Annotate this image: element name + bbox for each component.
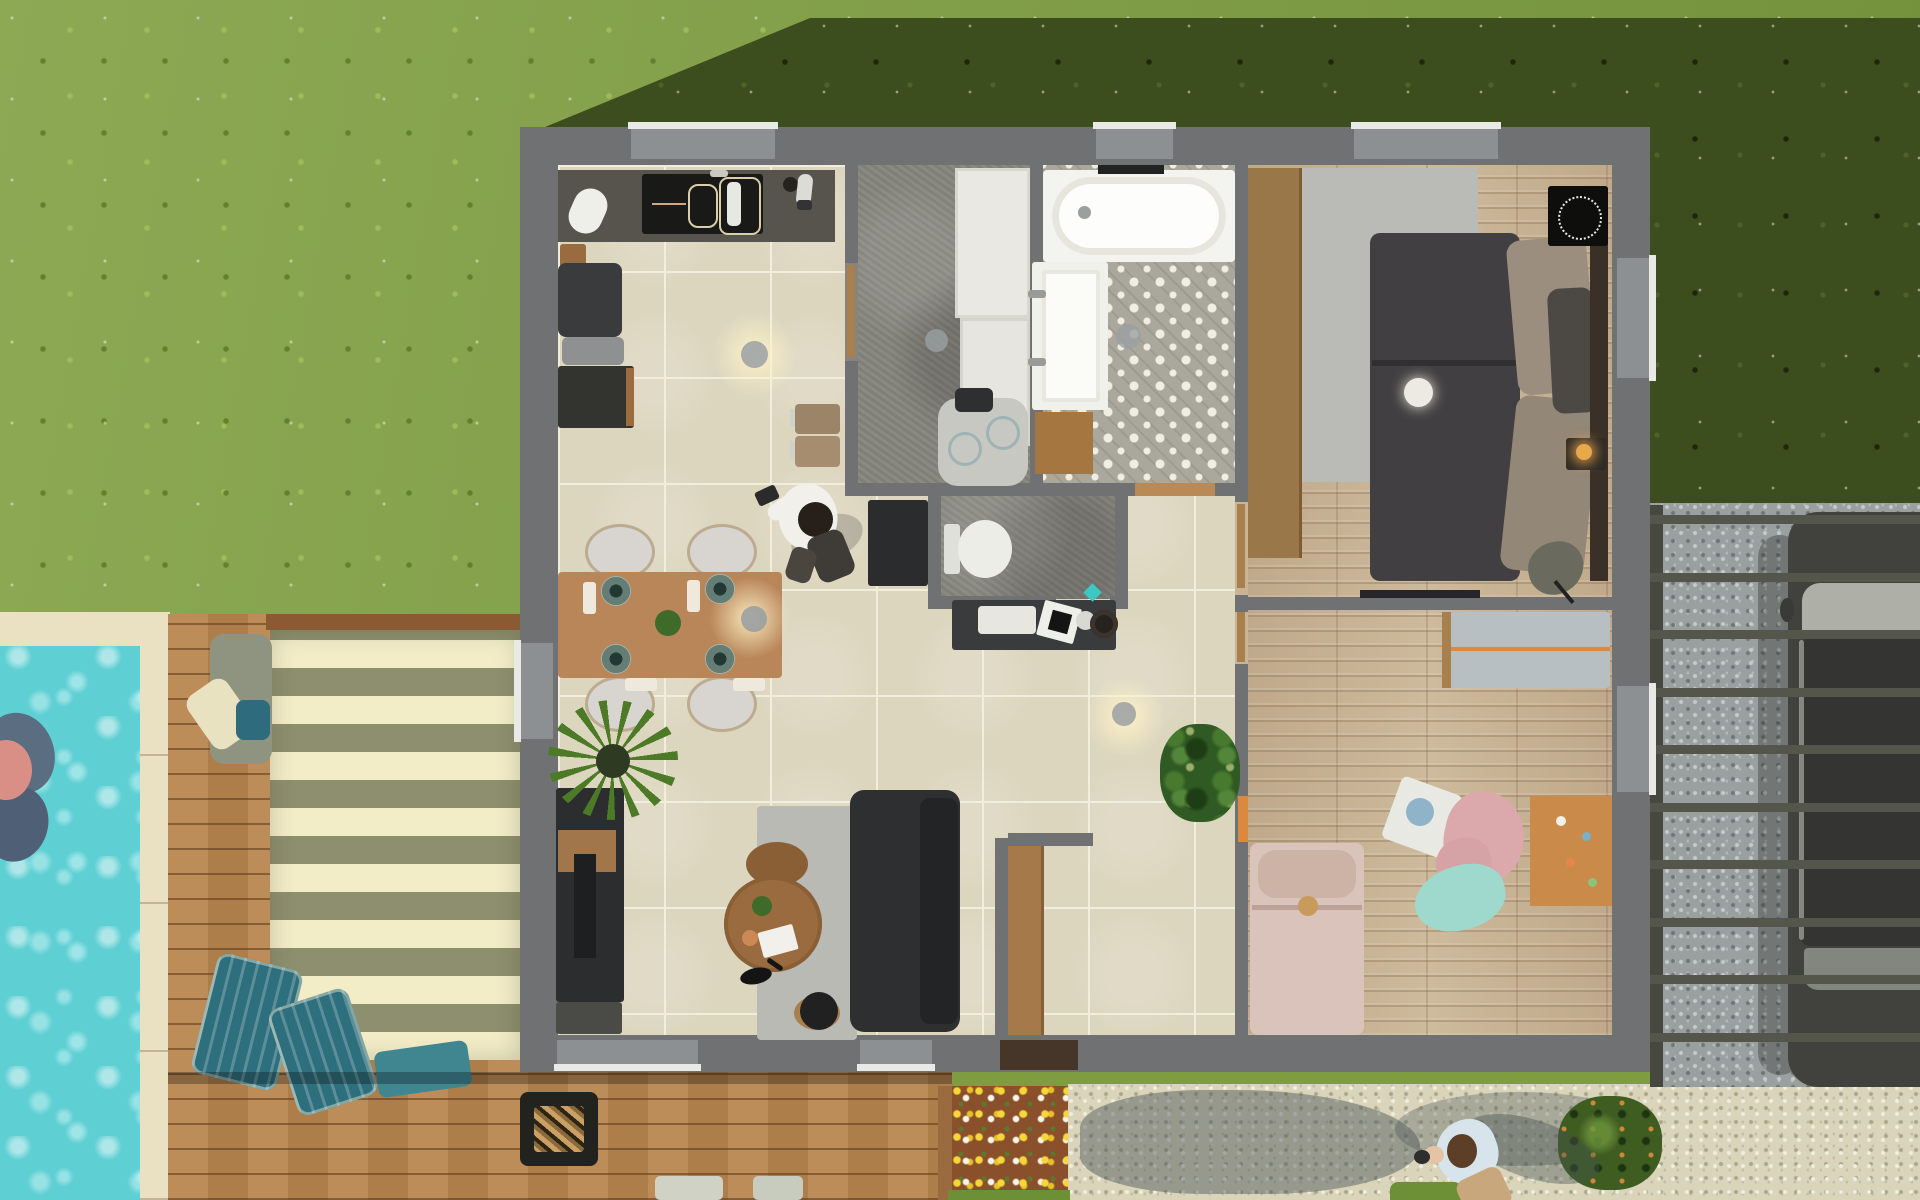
dining-plate [601,576,631,606]
ceiling-lamp-bedroom1 [1404,378,1433,407]
flowerbed [952,1086,1068,1200]
entry-doormat [556,1002,622,1034]
bedroom2-wall-shelf[interactable] [1238,796,1248,842]
pergola-awning[interactable] [270,630,520,1060]
sideboard-knob [1090,610,1118,638]
ceiling-lamp-bath [1116,324,1141,349]
side-chair-2[interactable] [795,436,840,467]
headboard [1590,236,1608,581]
pouf[interactable] [800,992,838,1030]
laundry-chair[interactable] [955,388,993,412]
window-north-3-sill [1351,122,1501,129]
kitchen-sink-basin [727,182,741,226]
wardrobe[interactable] [1248,168,1302,558]
dining-napkin [733,678,765,691]
fence-rail [1650,860,1920,869]
wall-wc-west [928,496,941,606]
car-mirror [1780,598,1794,622]
window-north-2 [1096,129,1173,159]
laundry-cabinet-1[interactable] [955,168,1030,318]
kitchen-espresso-machine[interactable] [783,177,798,192]
dining-napkin [625,678,657,691]
vanity-faucet-2 [1028,358,1046,366]
fire-pit-logs [534,1106,584,1152]
wall-entry-stub [1008,833,1093,846]
kitchen-kettle-cap [797,200,812,210]
fence-rail [1650,975,1920,984]
coffee-table-large[interactable] [724,876,822,972]
ceiling-lamp-laundry [925,329,948,352]
laundry-ring-1 [948,432,982,466]
sideboard-towels [978,606,1036,634]
changing-mat-strap [1448,647,1610,651]
media-unit-dark [574,854,596,958]
kitchen-sink-1 [688,184,718,228]
bathtub-drain [1078,206,1091,219]
fence-rail [1650,688,1920,697]
fence-post [1650,505,1663,1087]
bathroom-door-threshold[interactable] [1135,483,1215,496]
kids-desk-item [1588,878,1597,887]
bed-duvet[interactable] [1370,233,1520,581]
patio-door-south-sill [554,1064,701,1071]
ceiling-lamp-kitchen [741,341,768,368]
window-east-1 [1617,258,1649,378]
window-west [521,643,553,739]
window-east-2 [1617,686,1649,792]
dining-napkin [687,580,700,612]
side-chair-frame-2 [790,441,795,459]
bath-wall-shelf [1098,165,1164,174]
fence-rail [1650,1033,1920,1042]
kids-desk-item [1582,832,1591,841]
lounge-armchair[interactable] [558,263,622,337]
coffee-table-plant [752,896,772,916]
vanity-basin [1042,270,1100,402]
monstera-plant[interactable] [1160,724,1240,822]
laundry-ring-2 [986,416,1020,450]
lounger-sage-towel [236,700,270,740]
side-chair-frame-1 [790,409,795,427]
wall-bedrooms-west [1235,165,1248,1035]
bedroom1-desk-ledge[interactable] [1360,590,1480,598]
side-chair-1[interactable] [795,404,840,434]
wall-wc-east [1115,496,1128,606]
nightstand-lamp[interactable] [1576,444,1592,460]
window-north-1-sill [628,122,778,129]
bed-duvet-fold [1372,360,1518,366]
dining-napkin [583,582,596,614]
entry-door-south[interactable] [1000,1040,1078,1070]
dining-centerpiece-plant [655,610,681,636]
window-east-1-sill [1649,255,1656,381]
pergola-beam [266,614,520,630]
kids-desk-item [1556,816,1566,826]
hall-cabinet[interactable] [868,500,928,586]
fence-rail [1650,630,1920,639]
fence-rail [1650,515,1920,524]
laundry-door-leaf[interactable] [847,265,855,357]
shoe-cabinet[interactable] [1008,846,1044,1035]
floor-plan-scene [0,0,1920,1200]
window-east-2-sill [1649,683,1656,795]
chandelier-ring [1558,196,1602,240]
pendant-lamp-dining [741,606,767,632]
window-north-1 [631,129,775,159]
window-west-sill [514,640,521,742]
wall-entry-vert [995,838,1008,1035]
window-south-2-sill [857,1064,935,1071]
house-shadow-south [168,1072,952,1084]
bath-mat-wood [1035,412,1093,474]
kids-desk-item [1566,858,1575,867]
ceiling-lamp-hall [1112,702,1136,726]
lounge-ottoman[interactable] [562,337,624,365]
coffee-table-bowl [742,930,758,946]
stepping-stone-2 [753,1176,803,1200]
dining-plate [705,574,735,604]
changing-mat-edge [1442,612,1451,688]
sofa-back-cushions [920,798,958,1024]
kitchen-faucet [710,170,728,177]
bedroom1-door-leaf[interactable] [1237,504,1245,588]
window-north-3 [1354,129,1498,159]
dining-plate [601,644,631,674]
teddy-bear[interactable] [1298,896,1318,916]
storage-cabinet-wood [626,368,634,426]
pedestrian-head [1447,1134,1477,1168]
flowerbed-lawn-sliver [948,1190,1070,1200]
fence-rail [1650,573,1920,582]
fence-rail [1650,918,1920,927]
pedestrian-hand-object [1414,1150,1430,1164]
stepping-stone-1 [655,1176,723,1200]
kids-desk[interactable] [1530,796,1612,906]
fence-rail [1650,803,1920,812]
toilet-bowl[interactable] [958,520,1012,578]
car-windshield [1802,583,1920,635]
kitchen-cooktop-line [652,203,686,205]
kids-bed-pillow [1258,850,1356,898]
bedroom2-door-leaf[interactable] [1237,612,1245,662]
storage-cabinet[interactable] [558,366,634,428]
wall-bedroom1-bedroom2 [1248,597,1612,610]
dining-plate [705,644,735,674]
palm-plant-center [596,744,630,778]
car-door-line [1799,640,1804,940]
fence-rail [1650,745,1920,754]
car-roof [1800,638,1920,946]
window-north-2-sill [1093,122,1176,129]
vanity-faucet-1 [1028,290,1046,298]
